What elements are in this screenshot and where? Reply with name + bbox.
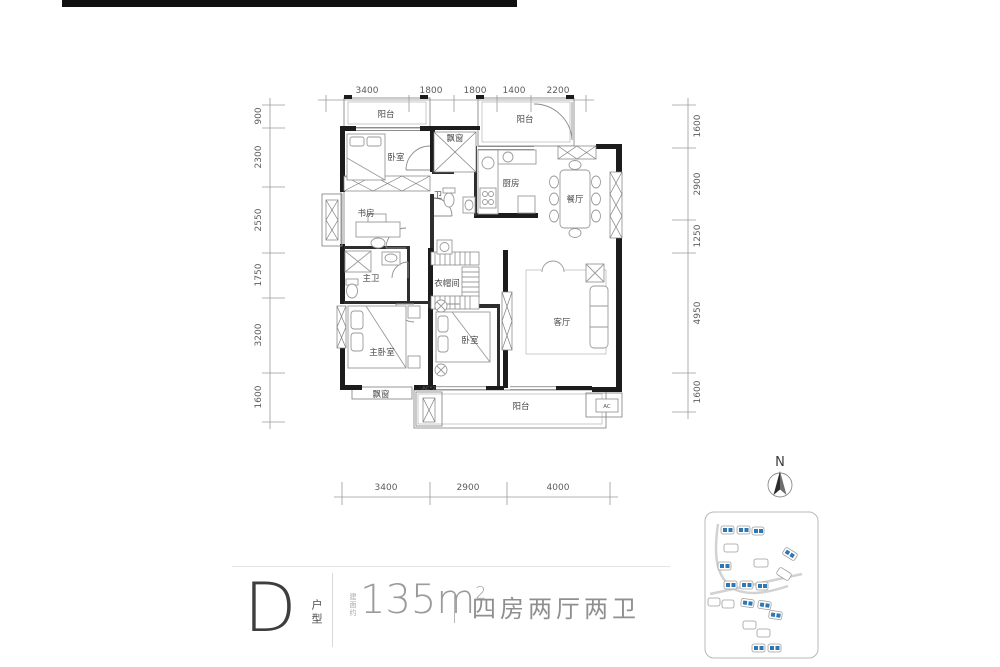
label-ac-right: AC (603, 404, 611, 410)
living-room-icons (526, 261, 608, 354)
dim-label: 4950 (693, 301, 703, 324)
dim-label: 1250 (693, 224, 703, 247)
dim-label: 3400 (375, 483, 398, 493)
area-prefix-label: 建面约 (348, 593, 358, 617)
dim-label: 4000 (547, 483, 570, 493)
room-label-bedroom-top: 卧室 (387, 152, 405, 163)
dim-label: 2200 (547, 86, 570, 96)
unit-type-letter: D (244, 567, 296, 651)
room-label-kitchen: 厨房 (502, 178, 519, 189)
washer-icon (437, 240, 452, 254)
dim-label: 2300 (254, 145, 264, 168)
room-label-bedroom-mid: 卧室 (461, 335, 479, 346)
unit-type-label: 户型 (308, 599, 324, 627)
ac-closet-left (416, 392, 442, 426)
bed-top-icon (347, 134, 385, 180)
area-separator (454, 593, 455, 623)
dim-label: 1600 (254, 385, 264, 408)
room-label-study: 书房 (357, 208, 374, 219)
master-bed-icon (348, 306, 420, 368)
label-ac-left: AC*2 (422, 386, 436, 392)
entry-cabinet (558, 146, 596, 159)
dim-label: 1600 (693, 114, 703, 137)
dim-label: 1800 (464, 86, 487, 96)
room-label-bay-window-top: 飘窗 (446, 133, 463, 144)
area-number: 135m (360, 577, 475, 623)
room-label-bath: 卫 (434, 191, 443, 201)
compass-icon: N (768, 455, 792, 497)
compass-north-label: N (775, 455, 785, 470)
vertical-divider (332, 573, 333, 647)
dim-label: 1800 (420, 86, 443, 96)
room-label-closet: 衣帽间 (434, 278, 460, 289)
floor-plan-page: { "plan": { "rooms": { "balcony_top_left… (0, 0, 1000, 667)
room-label-master-bedroom: 主卧室 (369, 347, 395, 358)
dim-label: 1400 (503, 86, 526, 96)
room-label-bay-window-bottom: 飘窗 (372, 389, 389, 400)
unit-info-block: D 户型 建面约 135m2 四房两厅两卫 (232, 566, 670, 653)
dimension-left: 900 2300 2550 1750 3200 1600 (254, 98, 285, 429)
study-desk-icon (356, 214, 400, 248)
dim-label: 3400 (356, 86, 379, 96)
area-value: 135m2 (360, 577, 486, 623)
dim-label: 1600 (693, 380, 703, 403)
dim-label: 2550 (254, 208, 264, 231)
dim-label: 900 (254, 107, 264, 124)
room-label-dining: 餐厅 (566, 195, 584, 205)
room-label-balcony-top-left: 阳台 (377, 109, 394, 120)
dimension-top: 3400 1800 1800 1400 2200 (318, 86, 594, 112)
site-map (705, 512, 818, 658)
room-label-balcony-top-right: 阳台 (516, 114, 533, 125)
dimension-right: 1600 2900 1250 4950 1600 (672, 98, 703, 419)
dim-label: 3200 (254, 323, 264, 346)
dim-label: 2900 (457, 483, 480, 493)
room-label-master-bath: 主卫 (362, 273, 380, 284)
room-label-living: 客厅 (553, 317, 571, 328)
dim-label: 1750 (254, 263, 264, 286)
layout-description: 四房两厅两卫 (472, 589, 640, 624)
bath-fixtures (443, 188, 475, 213)
dimension-bottom: 3400 2900 4000 (334, 482, 618, 505)
dim-label: 2900 (693, 172, 703, 195)
room-label-balcony-bottom: 阳台 (512, 401, 529, 412)
